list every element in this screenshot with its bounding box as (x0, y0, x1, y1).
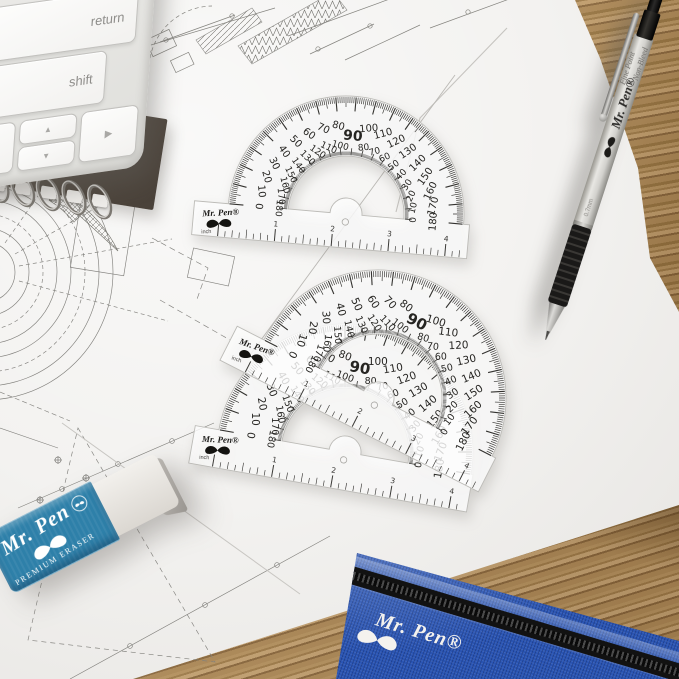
product-photo-scene: return shift ▲ ▼ ▶ 018010170201603015040… (0, 0, 679, 679)
protractor-unit-label: inch (201, 229, 211, 236)
svg-text:160: 160 (320, 333, 333, 352)
protractor-brand-label: Mr. Pen® (201, 206, 239, 218)
eraser-badge-icon (69, 493, 91, 515)
mustache-icon (74, 499, 85, 508)
svg-text:30: 30 (319, 310, 332, 324)
protractor-brand-label: Mr. Pen® (201, 434, 239, 445)
protractor-center-hole (342, 219, 349, 226)
svg-text:60: 60 (435, 351, 448, 363)
svg-text:0: 0 (253, 203, 265, 210)
svg-text:180: 180 (427, 212, 440, 232)
protractor-1: 0180101702016030150401405013060120701108… (192, 83, 480, 258)
svg-text:110: 110 (438, 325, 459, 339)
svg-text:120: 120 (448, 339, 469, 352)
protractor-unit-label: inch (199, 455, 209, 461)
svg-text:150: 150 (331, 326, 343, 345)
svg-text:10: 10 (249, 412, 261, 425)
protractors-group: 0180101702016030150401405013060120701108… (0, 0, 679, 679)
svg-text:0: 0 (409, 216, 419, 223)
svg-text:20: 20 (255, 396, 269, 411)
svg-text:10: 10 (255, 184, 267, 198)
svg-text:20: 20 (306, 320, 320, 335)
